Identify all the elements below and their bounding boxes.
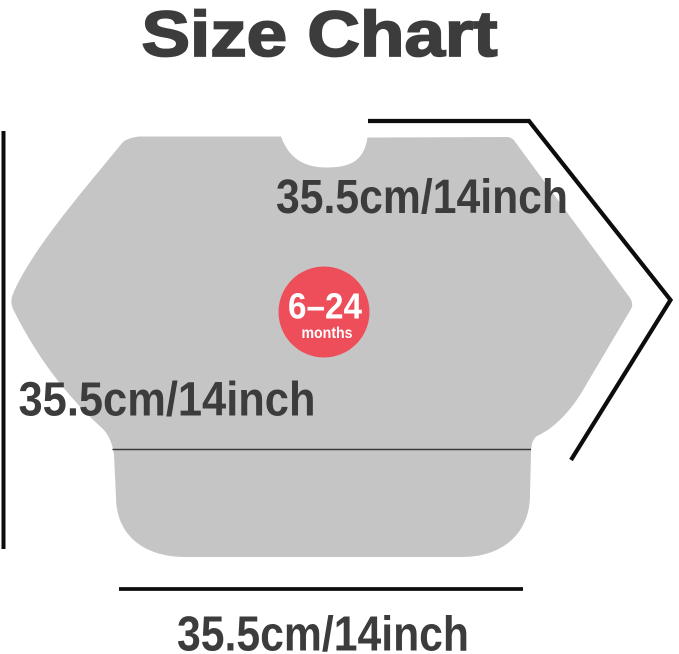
svg-text:months: months — [302, 325, 353, 342]
svg-text:35.5cm/14inch: 35.5cm/14inch — [19, 374, 316, 427]
svg-text:35.5cm/14inch: 35.5cm/14inch — [177, 608, 469, 654]
svg-text:Size Chart: Size Chart — [142, 0, 498, 70]
svg-text:35.5cm/14inch: 35.5cm/14inch — [276, 171, 568, 224]
svg-text:6–24: 6–24 — [288, 286, 362, 327]
